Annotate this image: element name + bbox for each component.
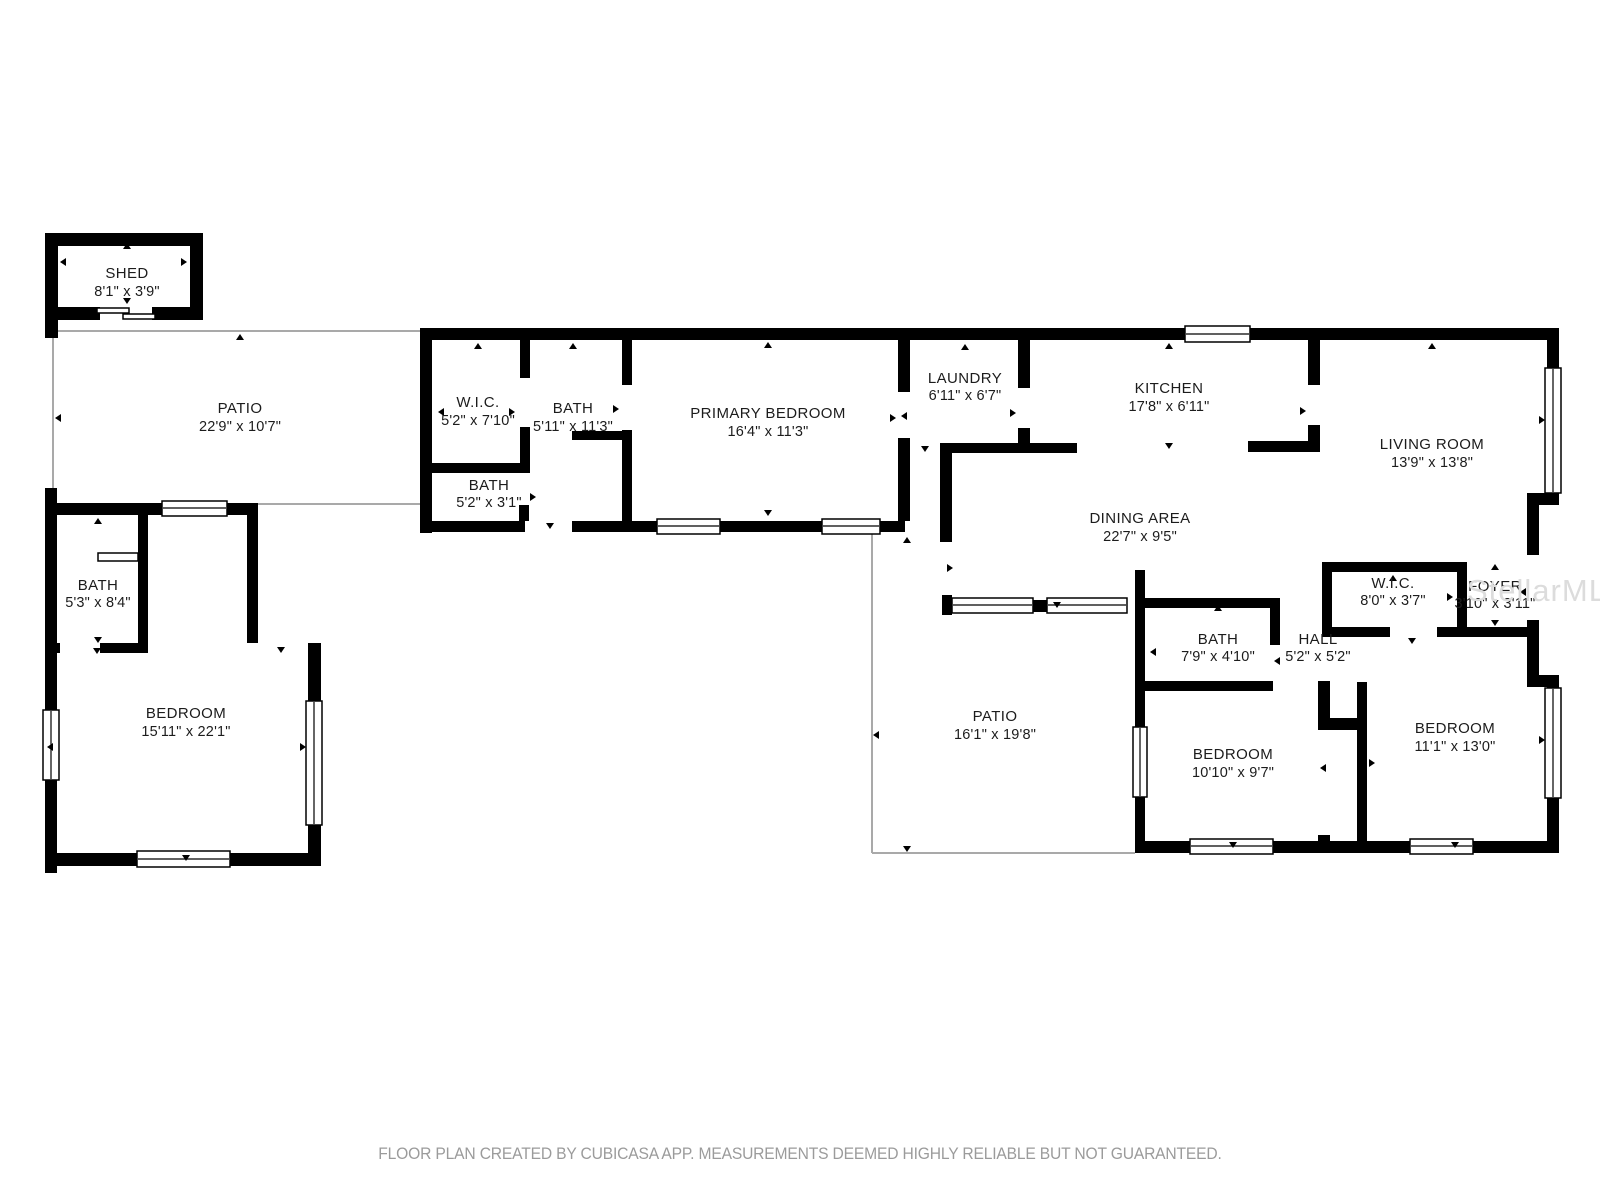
room-label-kitchen: KITCHEN xyxy=(1135,380,1204,397)
room-dims-bath-hall: 7'9" x 4'10" xyxy=(1181,649,1255,665)
room-dims-bath-primary: 5'11" x 11'3" xyxy=(533,419,613,435)
room-dims-bedroom-west: 15'11" x 22'1" xyxy=(141,724,230,740)
watermark: StellarMLS xyxy=(1467,573,1600,608)
room-label-primary-bedroom: PRIMARY BEDROOM xyxy=(690,405,845,422)
room-label-dining-area: DINING AREA xyxy=(1089,510,1190,527)
room-dims-bedroom-middle: 10'10" x 9'7" xyxy=(1192,765,1274,781)
room-label-bath-primary: BATH xyxy=(553,400,594,417)
floor-plan-canvas: SHED 8'1" x 3'9" PATIO 22'9" x 10'7" W.I… xyxy=(0,0,1600,1200)
room-label-wic-primary: W.I.C. xyxy=(456,394,499,411)
room-label-bedroom-middle: BEDROOM xyxy=(1193,746,1273,763)
room-label-bath-west: BATH xyxy=(78,577,119,594)
room-dims-patio-rear: 16'1" x 19'8" xyxy=(954,727,1036,743)
room-label-wic-hall: W.I.C. xyxy=(1371,575,1414,592)
room-dims-dining-area: 22'7" x 9'5" xyxy=(1103,529,1177,545)
room-dims-shed: 8'1" x 3'9" xyxy=(94,284,160,300)
sliding-door xyxy=(123,314,155,319)
room-dims-wic-primary: 5'2" x 7'10" xyxy=(441,413,515,429)
windows-layer xyxy=(43,308,1561,867)
room-dims-bedroom-east: 11'1" x 13'0" xyxy=(1414,739,1495,755)
vanity-counter xyxy=(98,553,138,561)
patio-outline-layer xyxy=(53,331,1135,853)
room-label-shed: SHED xyxy=(105,265,148,282)
room-label-laundry: LAUNDRY xyxy=(928,370,1002,387)
room-label-bedroom-west: BEDROOM xyxy=(146,705,226,722)
room-label-bath-hall: BATH xyxy=(1198,631,1239,648)
room-dims-hall: 5'2" x 5'2" xyxy=(1285,649,1351,665)
room-label-hall: HALL xyxy=(1298,631,1337,648)
room-dims-wic-hall: 8'0" x 3'7" xyxy=(1360,593,1426,609)
room-dims-living-room: 13'9" x 13'8" xyxy=(1391,455,1473,471)
walls-layer xyxy=(45,233,1559,873)
room-label-bath-small: BATH xyxy=(469,477,510,494)
room-label-patio-rear: PATIO xyxy=(973,708,1018,725)
room-dims-laundry: 6'11" x 6'7" xyxy=(929,388,1002,404)
floor-plan-svg: SHED 8'1" x 3'9" PATIO 22'9" x 10'7" W.I… xyxy=(0,0,1600,1200)
room-dims-patio-left: 22'9" x 10'7" xyxy=(199,419,281,435)
room-dims-bath-west: 5'3" x 8'4" xyxy=(65,595,131,611)
room-label-bedroom-east: BEDROOM xyxy=(1415,720,1495,737)
room-dims-bath-small: 5'2" x 3'1" xyxy=(456,495,522,511)
room-dims-kitchen: 17'8" x 6'11" xyxy=(1128,399,1209,415)
room-label-living-room: LIVING ROOM xyxy=(1380,436,1484,453)
footer-disclaimer: FLOOR PLAN CREATED BY CUBICASA APP. MEAS… xyxy=(64,1144,1536,1164)
room-dims-primary-bedroom: 16'4" x 11'3" xyxy=(727,424,808,440)
sliding-door xyxy=(97,308,129,313)
room-label-patio-left: PATIO xyxy=(218,400,263,417)
